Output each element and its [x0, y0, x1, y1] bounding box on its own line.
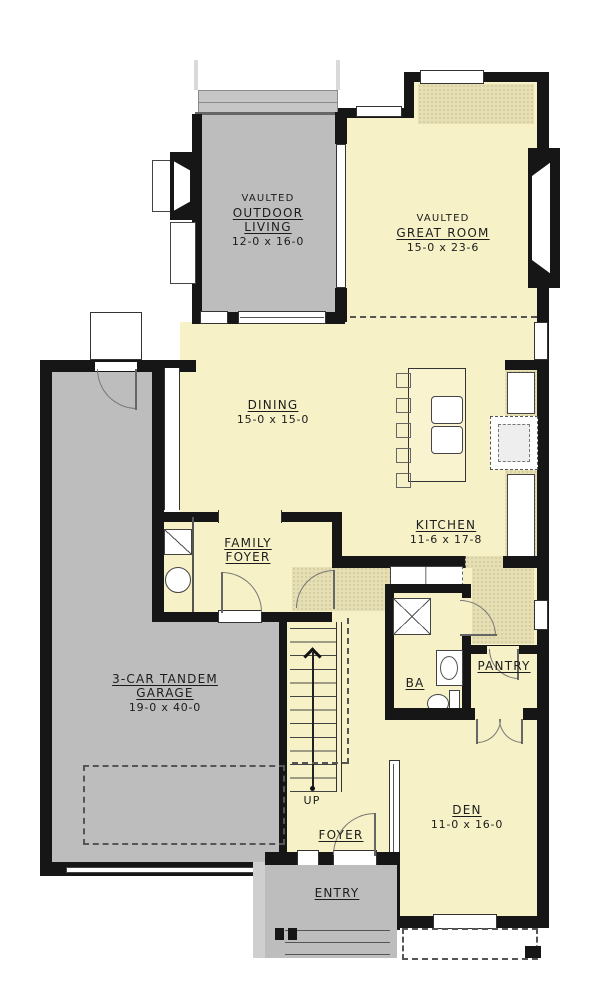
kitchen-counter-cap	[505, 360, 549, 370]
entry-label: ENTRY	[315, 886, 360, 900]
great-room-vaulted: VAULTED	[416, 213, 469, 224]
den-shelf-wall	[389, 760, 400, 856]
garage-floor-upper	[40, 365, 162, 617]
entry-side-pier	[253, 862, 265, 958]
garage-name-1: 3-CAR TANDEM	[112, 672, 218, 686]
front-door-leaf	[374, 813, 376, 856]
great-room-top-window	[420, 70, 484, 84]
stairs-up-label: UP	[303, 794, 320, 808]
kitchen-dims: 11-6 x 17-8	[410, 533, 482, 546]
great-room-label: VAULTED GREAT ROOM 15-0 x 23-6	[396, 210, 489, 255]
great-room-name: GREAT ROOM	[396, 226, 489, 240]
refrigerator	[507, 372, 535, 414]
garage-door	[66, 867, 264, 873]
outdoor-living-name-2: LIVING	[244, 220, 291, 234]
bath-label: BA	[406, 676, 425, 690]
dining-east-window	[534, 322, 548, 360]
dining-dims: 15-0 x 15-0	[237, 413, 309, 426]
foyer-ceiling-dash	[292, 762, 348, 764]
family-foyer-door-leaf	[221, 572, 223, 613]
entry-post	[288, 928, 297, 940]
bath-north-wall	[385, 584, 470, 593]
bar-stool	[396, 448, 411, 463]
entry-sidelite	[297, 850, 319, 866]
mud-bench-cabinet	[390, 566, 463, 586]
garage-wall-cavity	[164, 368, 180, 510]
vault-line-dash	[350, 316, 537, 318]
porch-corner-post	[525, 946, 541, 958]
dining-name: DINING	[248, 398, 299, 412]
shower	[393, 598, 431, 635]
outdoor-living-south-window	[200, 311, 228, 324]
garage-dims: 19-0 x 40-0	[129, 701, 201, 714]
dining-label: DINING 15-0 x 15-0	[237, 398, 309, 427]
den-shelf-line	[393, 764, 394, 852]
den-label: DEN 11-0 x 16-0	[431, 803, 503, 832]
stair-start-dot	[310, 786, 315, 791]
washer	[164, 529, 192, 555]
outdoor-living-east-window	[336, 144, 346, 288]
pantry-east-window	[534, 600, 548, 630]
den-north-wall	[385, 708, 475, 720]
bath-name: BA	[406, 676, 425, 690]
garage-name-2: GARAGE	[136, 686, 193, 700]
family-foyer-name-1: FAMILY	[224, 536, 272, 550]
garage-third-bay-outline	[83, 765, 285, 845]
bar-stool	[396, 373, 411, 388]
great-room-firebox	[532, 158, 550, 278]
garage-label: 3-CAR TANDEM GARAGE 19-0 x 40-0	[112, 672, 218, 715]
sliding-door-track	[240, 317, 324, 318]
pantry-label: PANTRY	[477, 659, 530, 673]
bar-stool	[396, 473, 411, 488]
outdoor-living-east-post	[335, 112, 347, 144]
bath-door-leaf	[460, 634, 497, 636]
outdoor-living-name-1: OUTDOOR	[233, 206, 303, 220]
pantry-name: PANTRY	[477, 659, 530, 673]
entry-north-wall	[265, 852, 397, 865]
garage-west-wall	[40, 360, 52, 874]
kitchen-name: KITCHEN	[416, 518, 476, 532]
roof-edge	[195, 112, 345, 115]
island-sink	[431, 396, 463, 424]
den-north-wall	[523, 708, 549, 720]
den-name: DEN	[452, 803, 481, 817]
dryer	[165, 567, 191, 593]
floor-plan: VAULTED OUTDOOR LIVING 12-0 x 16-0 VAULT…	[0, 0, 600, 1000]
entry-step-line	[285, 954, 390, 955]
outdoor-living-dims: 12-0 x 16-0	[232, 235, 304, 248]
family-foyer-cased-opening	[218, 510, 282, 523]
family-foyer-label: FAMILY FOYER	[224, 536, 272, 564]
garage-east-wall	[152, 365, 164, 617]
bath-sink	[440, 656, 458, 680]
den-french-door-leaf	[476, 719, 478, 744]
entry-name: ENTRY	[315, 886, 360, 900]
entry-step-line	[285, 930, 390, 931]
den-dims: 11-0 x 16-0	[431, 818, 503, 831]
kitchen-island	[408, 368, 466, 482]
outdoor-living-label: VAULTED OUTDOOR LIVING 12-0 x 16-0	[232, 190, 304, 249]
foyer-label: FOYER	[319, 828, 364, 842]
entry-step-line	[285, 942, 390, 943]
kitchen-label: KITCHEN 11-6 x 17-8	[410, 518, 482, 547]
bar-stool	[396, 398, 411, 413]
kitchen-cased-opening	[465, 556, 505, 568]
outdoor-living-vaulted: VAULTED	[241, 193, 294, 204]
laundry-partition	[192, 517, 194, 612]
roof-edge-line	[336, 60, 340, 90]
base-cabinet	[507, 474, 535, 558]
den-french-door-leaf	[521, 719, 523, 744]
garage-entry-landing	[90, 312, 142, 360]
covered-porch-outline	[402, 928, 538, 960]
mud-hall-door-leaf	[333, 570, 335, 609]
garage-entry-door-leaf	[135, 369, 137, 410]
stair-overhead-dash	[347, 618, 349, 764]
bar-stool	[396, 423, 411, 438]
entry-porch-floor	[265, 865, 397, 958]
great-room-dims: 15-0 x 23-6	[407, 241, 479, 254]
den-south-window	[433, 914, 497, 929]
roof-edge-line	[194, 60, 198, 90]
entry-post	[275, 928, 284, 940]
kitchen-south-wall-east	[503, 556, 549, 568]
family-foyer-name-2: FOYER	[226, 550, 271, 564]
outdoor-fireplace-woodbox	[170, 222, 196, 284]
range-hood	[498, 424, 530, 462]
great-room-step-window	[356, 106, 402, 117]
stair-rail	[336, 622, 342, 792]
foyer-name: FOYER	[319, 828, 364, 842]
island-sink	[431, 426, 463, 454]
stairs-up-text: UP	[303, 794, 320, 807]
great-room-entry-hatch	[418, 84, 534, 124]
outdoor-fireplace-hearth	[152, 160, 172, 212]
stair-direction-line	[312, 652, 314, 788]
